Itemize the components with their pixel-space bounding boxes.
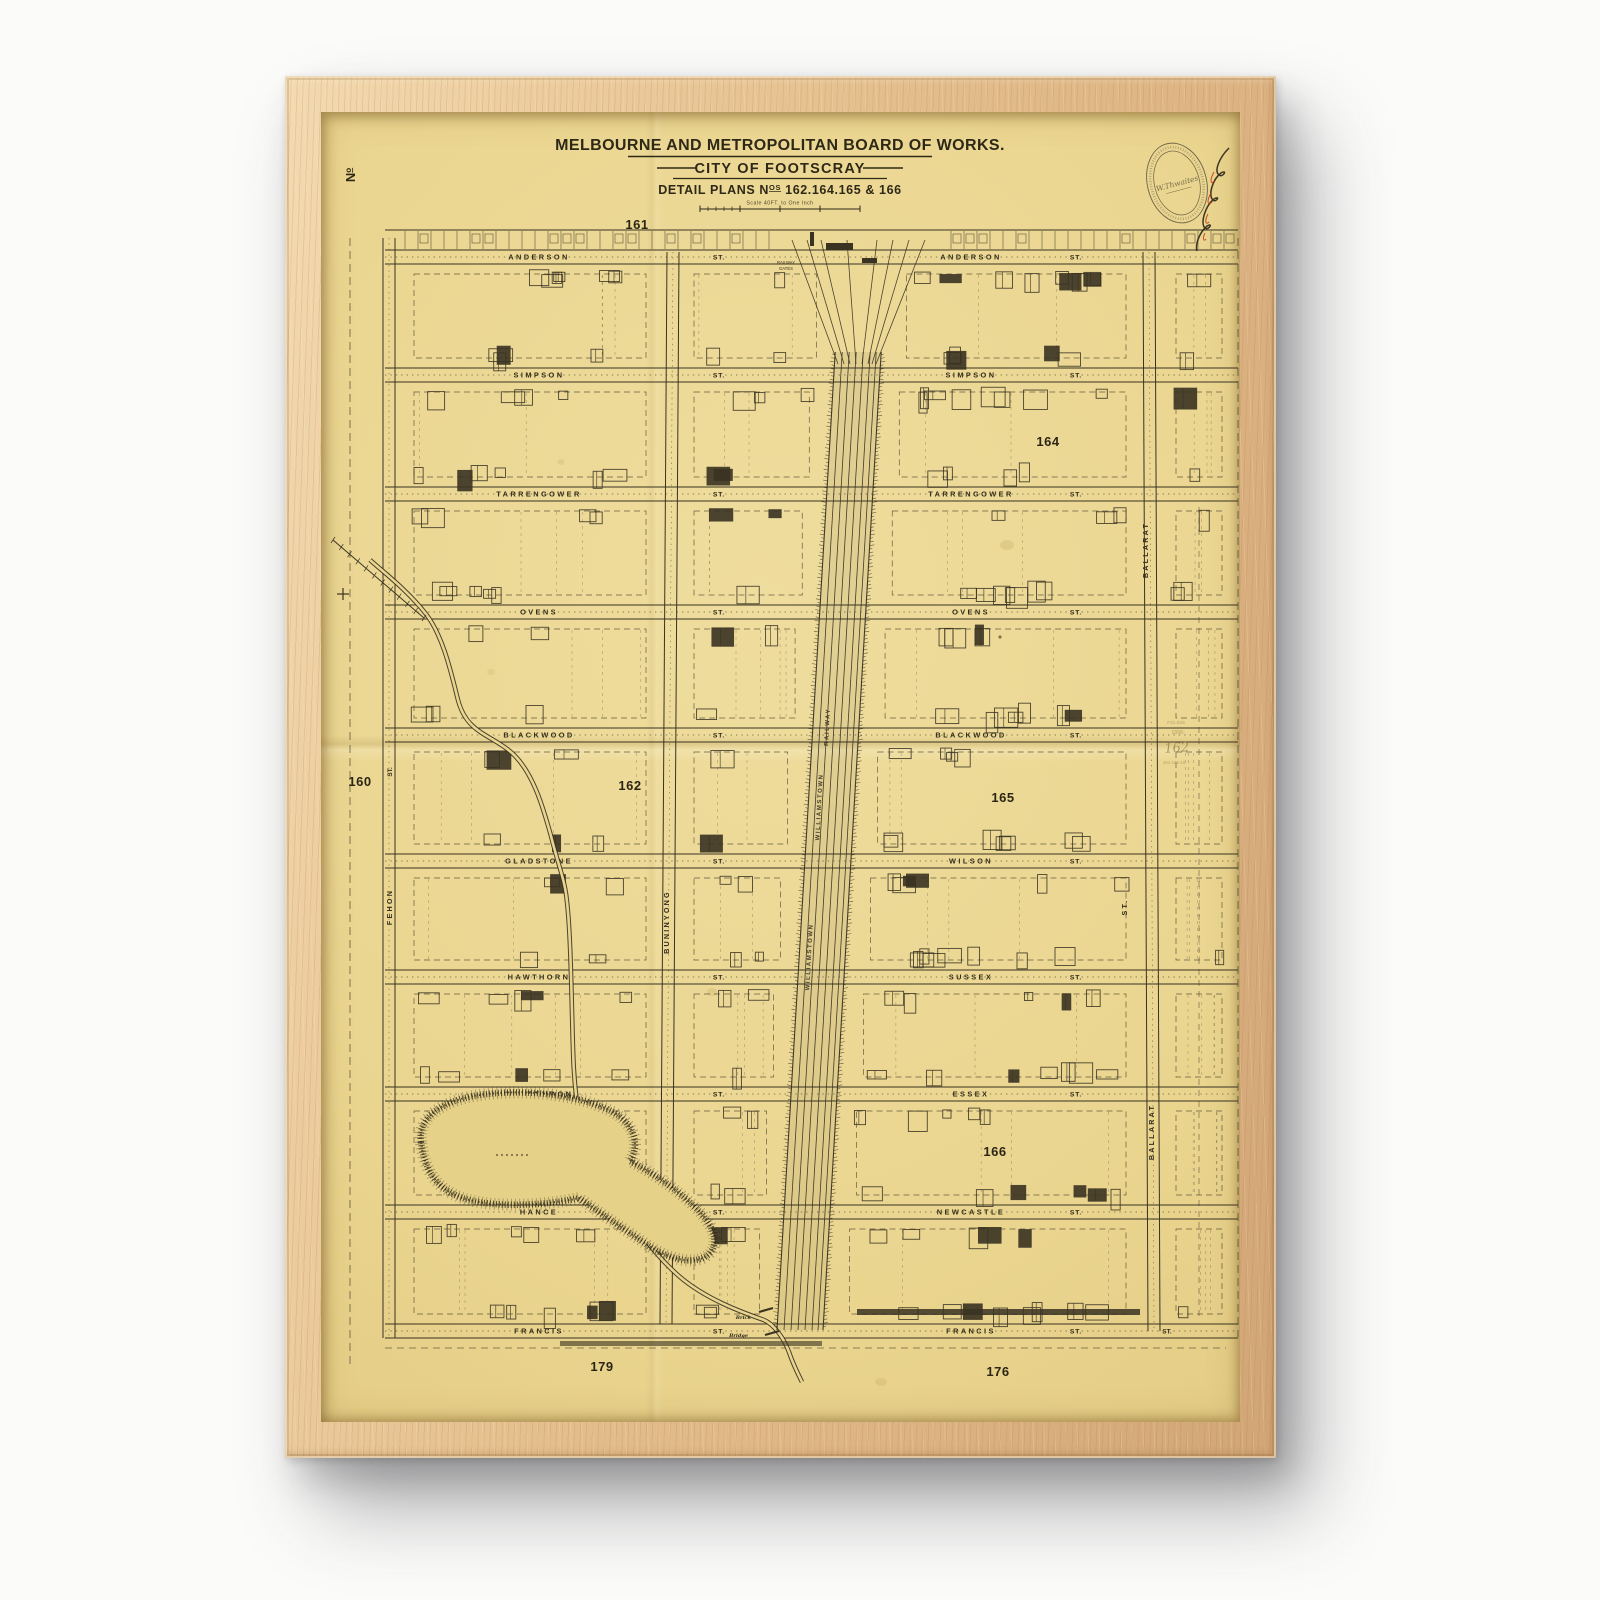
title-line3: DETAIL PLANS NOS 162.164.165 & 166 [658, 183, 901, 197]
bridge-label: Bridge [728, 1333, 748, 1339]
street-suffix-west: ST. [713, 1092, 725, 1099]
street-suffix-west: ST. [713, 859, 725, 866]
corner-no-text: No [343, 168, 358, 182]
street-name-west: GLADSTONE [505, 857, 573, 866]
street-suffix-east: ST. [1070, 859, 1082, 866]
street-suffix-west: ST. [713, 1329, 725, 1336]
creek [370, 560, 802, 1382]
plan-number: 161 [625, 217, 648, 232]
plan-number: 176 [986, 1364, 1009, 1379]
tramway [331, 537, 426, 621]
pencil-note: F21.016 [1167, 720, 1185, 726]
street-name-west: FRANCIS [514, 1327, 564, 1336]
street-name-east: FRANCIS [946, 1327, 996, 1336]
footscray-map: ANDERSONST.ANDERSONST.SIMPSONST.SIMPSONS… [321, 112, 1240, 1422]
street-suffix-east: ST. [1070, 1092, 1082, 1099]
street-name-west: SIMPSON [514, 371, 565, 380]
street-name-west: TARRENGOWER [496, 490, 581, 499]
street-suffix-west: ST. [713, 255, 725, 262]
gallery-wall: ANDERSONST.ANDERSONST.SIMPSONST.SIMPSONS… [0, 0, 1600, 1600]
street-name-vertical: FEHON [385, 889, 394, 925]
pencil-note-plan-number: 162 [1164, 740, 1190, 757]
title-line2: CITY OF FOOTSCRAY [694, 161, 865, 177]
street-name-west: BLACKWOOD [503, 731, 574, 740]
street-suffix-east: ST. [1070, 255, 1082, 262]
railway-gates-label: GATES [779, 266, 793, 271]
street-name-west: OVENS [520, 608, 558, 617]
street-suffix-east: ST. [1070, 610, 1082, 617]
street-name-vertical: BALLARAT [1141, 522, 1150, 578]
street-name-east: WILSON [949, 857, 993, 866]
swamp-pond [421, 1092, 715, 1260]
street-suffix-east: ST. [1070, 733, 1082, 740]
street-name-east: NEWCASTLE [937, 1208, 1005, 1217]
railway: RAILWAYGATESRAILWAYWILLIAMSTOWNWILLIAMST… [773, 232, 925, 1330]
street-suffix-east: ST. [1070, 1329, 1082, 1336]
street-name-vertical: BUNINYONG [662, 890, 671, 954]
street-suffix-east: ST. [1070, 373, 1082, 380]
scale-label: Scale 40FT. to One Inch [746, 201, 813, 207]
street-suffix-vertical: ST. [387, 767, 394, 777]
street-suffix-west: ST. [713, 610, 725, 617]
wooden-picture-frame: ANDERSONST.ANDERSONST.SIMPSONST.SIMPSONS… [285, 76, 1276, 1458]
pencil-note: 1898- [1171, 730, 1185, 736]
street-suffix-east: ST. [1070, 1210, 1082, 1217]
plan-number: 164 [1036, 434, 1059, 449]
street-name-west: ANDERSON [508, 253, 570, 262]
plan-number: 162 [618, 778, 641, 793]
street-name-east: BLACKWOOD [935, 731, 1006, 740]
street-suffix-west: ST. [713, 1210, 725, 1217]
plan-number: 160 [348, 774, 371, 789]
street-name-east: TARRENGOWER [928, 490, 1013, 499]
street-name-west: HANCE [520, 1208, 558, 1217]
stamp-signature: W.Thwaites [1155, 174, 1199, 194]
street-name-vertical: ST. [1120, 899, 1129, 916]
bridge-label: Brick [735, 1315, 752, 1321]
street-name-east: ESSEX [953, 1090, 990, 1099]
map-title-block: MELBOURNE AND METROPOLITAN BOARD OF WORK… [555, 137, 1005, 207]
street-name-vertical: BALLARAT [1147, 1104, 1156, 1160]
street-suffix-west: ST. [713, 733, 725, 740]
pencil-note: 164.165.16 [1163, 760, 1186, 765]
brick-bridge: BrickBridge [560, 1308, 1140, 1346]
street-name-east: SUSSEX [949, 973, 993, 982]
railway-gates-label: RAILWAY [777, 260, 795, 265]
street-suffix-east: ST. [1070, 975, 1082, 982]
street-suffix-east: ST. [1070, 492, 1082, 499]
street-name-east: ANDERSON [940, 253, 1002, 262]
street-suffix-far-east: ST. [1162, 1329, 1172, 1336]
map-paper: ANDERSONST.ANDERSONST.SIMPSONST.SIMPSONS… [321, 112, 1240, 1422]
plan-number: 179 [590, 1359, 613, 1374]
street-suffix-west: ST. [713, 975, 725, 982]
corner-number-label: No [343, 168, 358, 182]
street-name-east: OVENS [952, 608, 990, 617]
plan-number: 165 [991, 790, 1014, 805]
street-suffix-west: ST. [713, 492, 725, 499]
plan-number: 166 [983, 1144, 1006, 1159]
street-name-west: HAWTHORN [508, 973, 571, 982]
handwritten-annotations: F21.0161898-162164.165.16 [1163, 148, 1229, 765]
title-line1: MELBOURNE AND METROPOLITAN BOARD OF WORK… [555, 137, 1005, 154]
street-suffix-west: ST. [713, 373, 725, 380]
street-name-east: SIMPSON [946, 371, 997, 380]
